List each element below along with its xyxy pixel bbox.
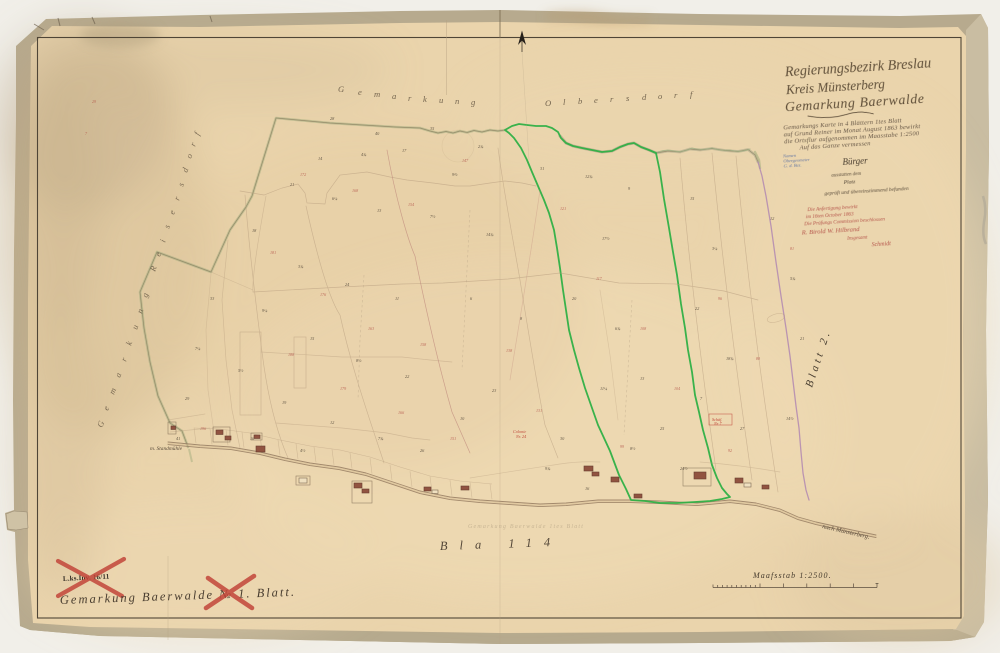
svg-text:151: 151: [450, 436, 456, 441]
svg-text:41: 41: [176, 436, 180, 441]
svg-text:179: 179: [340, 386, 346, 391]
svg-text:166: 166: [398, 410, 405, 415]
svg-text:5¾: 5¾: [790, 276, 796, 281]
svg-text:3¾: 3¾: [298, 264, 304, 269]
svg-text:9⅔: 9⅔: [452, 172, 458, 177]
svg-text:Schmidt: Schmidt: [871, 241, 891, 248]
svg-text:6¼: 6¼: [332, 196, 338, 201]
svg-text:g: g: [471, 97, 476, 107]
svg-text:e: e: [358, 87, 362, 97]
svg-text:163: 163: [368, 326, 374, 331]
svg-text:d: d: [642, 92, 647, 102]
svg-text:2¾: 2¾: [478, 144, 484, 149]
svg-text:7¾: 7¾: [378, 436, 384, 441]
svg-text:Nr 7: Nr 7: [713, 421, 722, 426]
svg-text:k: k: [423, 94, 427, 104]
svg-text:131: 131: [536, 408, 542, 413]
svg-text:9¾: 9¾: [545, 466, 551, 471]
svg-text:121: 121: [560, 206, 566, 211]
svg-text:18¾: 18¾: [726, 356, 734, 361]
svg-text:99: 99: [620, 444, 624, 449]
svg-text:196: 196: [200, 426, 207, 431]
svg-text:147: 147: [462, 158, 469, 163]
svg-text:5½: 5½: [238, 368, 244, 373]
svg-text:12¾: 12¾: [585, 174, 593, 179]
svg-text:188: 188: [288, 352, 294, 357]
svg-text:29: 29: [92, 99, 96, 104]
svg-text:13: 13: [377, 208, 381, 213]
svg-text:92: 92: [728, 448, 732, 453]
svg-text:o: o: [658, 91, 663, 101]
svg-text:11¼: 11¼: [600, 386, 608, 391]
svg-text:6¾: 6¾: [615, 326, 621, 331]
svg-text:154: 154: [408, 202, 414, 207]
svg-text:O: O: [545, 98, 551, 108]
svg-text:104: 104: [674, 386, 680, 391]
svg-text:17½: 17½: [602, 236, 610, 241]
svg-text:172: 172: [300, 172, 306, 177]
svg-text:13: 13: [640, 376, 644, 381]
svg-text:117: 117: [596, 276, 603, 281]
svg-text:108: 108: [640, 326, 646, 331]
svg-text:33: 33: [210, 296, 214, 301]
svg-text:8⅓: 8⅓: [356, 358, 362, 363]
svg-text:Platz: Platz: [843, 179, 857, 186]
svg-text:14¾: 14¾: [486, 232, 494, 237]
svg-text:21: 21: [290, 182, 294, 187]
svg-text:7¼: 7¼: [195, 346, 201, 351]
svg-text:8½: 8½: [630, 446, 636, 451]
svg-text:Nr. 24: Nr. 24: [515, 434, 526, 439]
svg-text:24½: 24½: [680, 466, 688, 471]
svg-text:88: 88: [756, 356, 760, 361]
svg-text:b: b: [578, 96, 583, 106]
svg-text:31: 31: [540, 166, 544, 171]
svg-text:Bürger: Bürger: [842, 155, 868, 167]
svg-text:e: e: [594, 95, 598, 105]
svg-text:21: 21: [800, 336, 804, 341]
svg-text:23: 23: [492, 388, 496, 393]
svg-text:7½: 7½: [430, 214, 436, 219]
svg-text:4½: 4½: [300, 448, 306, 453]
svg-text:a: a: [392, 91, 396, 101]
svg-text:81: 81: [790, 246, 794, 251]
svg-text:G: G: [338, 84, 345, 94]
svg-text:3¼: 3¼: [712, 246, 718, 251]
svg-text:n: n: [455, 96, 459, 106]
svg-text:168: 168: [352, 188, 358, 193]
svg-text:14½: 14½: [786, 416, 794, 421]
svg-text:9¼: 9¼: [262, 308, 268, 313]
svg-text:4¾: 4¾: [361, 152, 367, 157]
svg-text:Maafsstab 1:2500.: Maafsstab 1:2500.: [752, 571, 832, 580]
svg-text:u: u: [439, 95, 443, 105]
svg-text:176: 176: [320, 292, 327, 297]
svg-text:Gemarkung Baerwalde 1tes Blatt: Gemarkung Baerwalde 1tes Blatt: [468, 524, 584, 530]
svg-text:158: 158: [420, 342, 426, 347]
svg-text:11: 11: [395, 296, 399, 301]
svg-text:181: 181: [270, 250, 276, 255]
svg-text:m. Standmühle: m. Standmühle: [150, 446, 183, 452]
svg-text:m: m: [374, 89, 380, 99]
svg-text:138: 138: [506, 348, 512, 353]
